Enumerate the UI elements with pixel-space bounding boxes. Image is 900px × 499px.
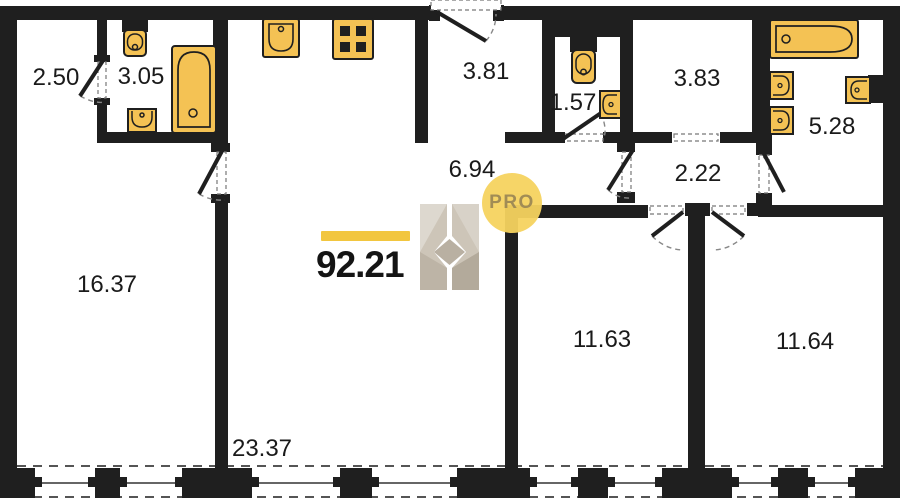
brand-logo-h-icon — [420, 204, 479, 290]
room-area-label-bedroom-2: 11.63 — [573, 326, 631, 354]
room-area-label-hallway: 6.94 — [449, 156, 496, 184]
room-area-label-bathroom-2: 5.28 — [809, 113, 856, 141]
room-area-label-corridor: 2.22 — [675, 160, 722, 188]
sink-icon — [846, 77, 870, 103]
room-area-label-bedroom-1: 16.37 — [77, 271, 137, 299]
room-area-label-pantry: 3.83 — [674, 65, 721, 93]
toilet-icon — [570, 37, 597, 83]
room-area-label-wc: 1.57 — [550, 89, 597, 117]
pro-badge-label: PRO — [489, 192, 535, 214]
kitchen-sink-icon — [263, 19, 299, 57]
floor-plan: 2.50 3.05 3.81 1.57 3.83 5.28 6.94 2.22 … — [0, 0, 900, 499]
room-area-label-bedroom-3: 11.64 — [776, 328, 834, 356]
bathtub-icon — [770, 20, 858, 58]
bathtub-icon — [172, 46, 216, 133]
total-area-value: 92.21 — [316, 246, 404, 283]
sink-icon — [770, 107, 793, 134]
stove-icon — [333, 19, 373, 59]
sink-icon — [128, 109, 156, 132]
toilet-icon — [122, 18, 148, 56]
room-area-label-balcony-room: 3.81 — [463, 58, 510, 86]
accent-bar — [321, 231, 410, 241]
room-area-label-closet: 2.50 — [33, 64, 80, 92]
pro-badge: PRO — [482, 173, 542, 233]
sink-icon — [600, 91, 621, 118]
room-area-label-bathroom-1: 3.05 — [118, 63, 165, 91]
sink-icon — [770, 72, 793, 99]
room-area-label-living-kitchen: 23.37 — [232, 435, 292, 463]
